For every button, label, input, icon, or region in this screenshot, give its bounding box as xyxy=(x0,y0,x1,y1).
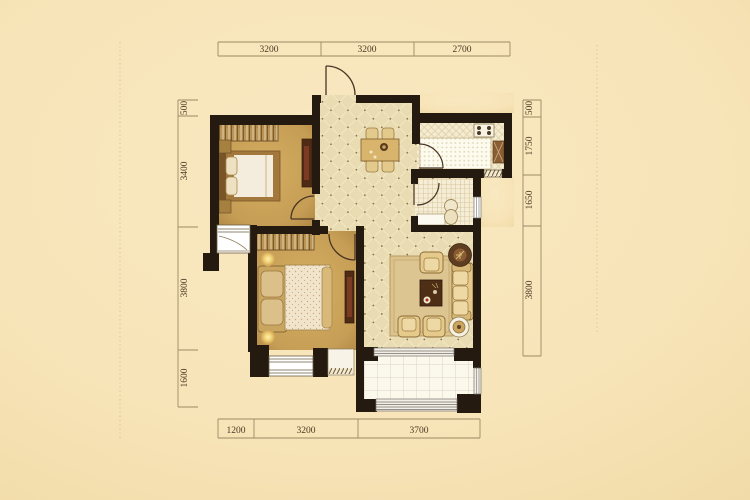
svg-text:3800: 3800 xyxy=(180,278,190,297)
svg-text:3200: 3200 xyxy=(297,426,316,436)
svg-text:1650: 1650 xyxy=(525,190,535,209)
svg-text:3800: 3800 xyxy=(525,280,535,299)
svg-text:1600: 1600 xyxy=(180,368,190,387)
svg-text:3700: 3700 xyxy=(410,426,429,436)
svg-text:1200: 1200 xyxy=(227,426,246,436)
svg-text:3400: 3400 xyxy=(180,161,190,180)
svg-text:1750: 1750 xyxy=(525,136,535,155)
svg-text:3200: 3200 xyxy=(358,45,377,55)
svg-text:2700: 2700 xyxy=(453,45,472,55)
svg-text:500: 500 xyxy=(525,101,535,116)
svg-text:3200: 3200 xyxy=(260,45,279,55)
svg-text:500: 500 xyxy=(180,101,190,116)
